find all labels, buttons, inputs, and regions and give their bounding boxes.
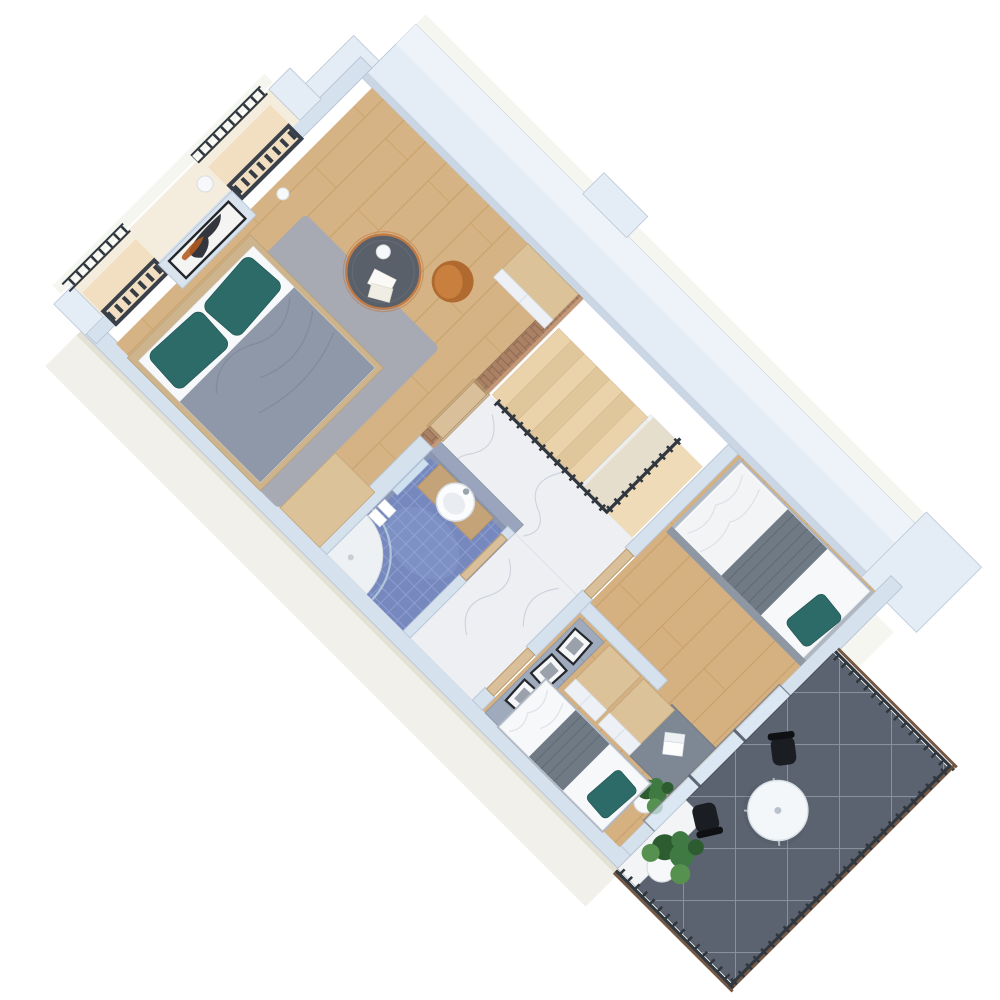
floorplan-svg <box>0 0 1000 1000</box>
floorplan-render <box>0 0 1000 1000</box>
building <box>9 0 1000 1000</box>
laptop <box>662 732 685 756</box>
